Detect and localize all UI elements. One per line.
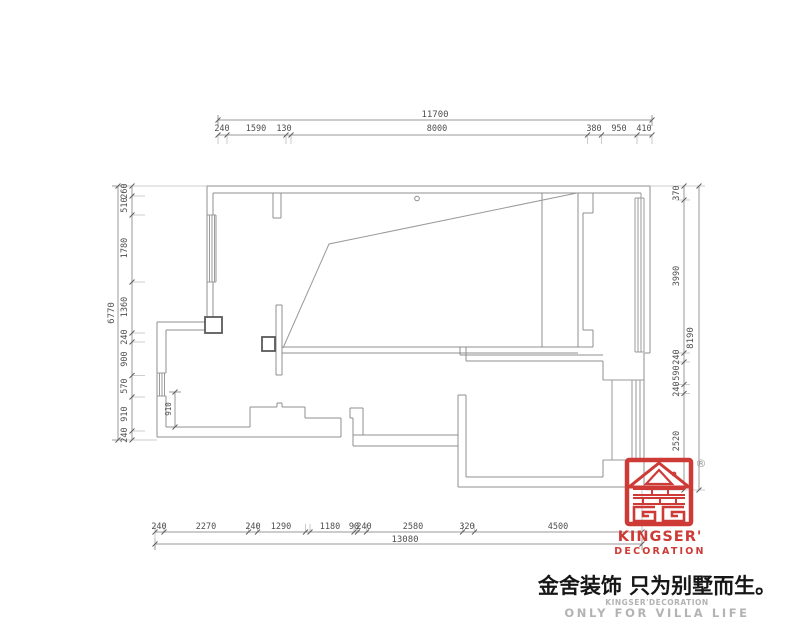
dim-label: 410 — [636, 124, 651, 134]
dim-label: 3990 — [672, 266, 682, 286]
wall-mainroom-bottom — [282, 347, 578, 353]
brand-name: KINGSER' — [588, 529, 732, 545]
dim-label: 570 — [120, 378, 130, 393]
window-lines — [635, 193, 644, 352]
dim-label-interior: 910 — [164, 402, 173, 416]
window-hatch-lower-left — [157, 373, 166, 396]
diagonal-guideline — [283, 193, 577, 348]
dim-label: 380 — [586, 124, 601, 134]
column-marker — [262, 337, 275, 351]
dim-label-bottom-overall: 13080 — [391, 535, 418, 545]
dim-label: 2520 — [672, 431, 682, 451]
window-hatch-lines — [207, 215, 216, 282]
wall-middle — [350, 408, 458, 446]
floor-plan-sheet: 11700 240 1590 130 8000 380 950 410 6770… — [0, 0, 800, 640]
dim-label: 240 — [120, 329, 130, 344]
dim-label: 8000 — [427, 124, 447, 134]
dim-label: 320 — [459, 522, 474, 532]
dim-label: 590 — [672, 365, 682, 380]
dim-extensions — [118, 186, 207, 440]
dim-label: 240 — [672, 381, 682, 396]
dim-label: 240 — [214, 124, 229, 134]
dim-label: 1360 — [120, 297, 130, 317]
wall-right-outer — [644, 186, 650, 488]
brand-subtitle: DECORATION — [588, 546, 732, 557]
registered-mark-icon: ® — [696, 457, 707, 470]
logo-maze-left — [634, 507, 655, 521]
dim-label-right-overall: 8190 — [686, 327, 696, 349]
window-hatch-lines — [157, 373, 166, 396]
wall-divider — [276, 305, 282, 375]
window-bay-right-lower — [603, 380, 644, 460]
dim-chain-bottom: 13080 240 2270 240 1290 1180 90 240 2580… — [151, 522, 644, 550]
dim-label: 510 — [120, 197, 130, 212]
dim-label: 240 — [120, 427, 130, 442]
dim-label: 950 — [611, 124, 626, 134]
interior-dimension: 910 — [164, 390, 181, 430]
dim-label: 260 — [120, 183, 130, 198]
wall-top-stub — [273, 193, 281, 218]
dim-label: 370 — [672, 185, 682, 200]
dim-label: 1290 — [271, 522, 291, 532]
window-right-upper — [635, 193, 644, 352]
window-lines — [603, 380, 644, 460]
dim-label: 240 — [672, 349, 682, 364]
dim-label: 4500 — [548, 522, 568, 532]
dim-label: 240 — [356, 522, 371, 532]
window-hatch-upper-left — [207, 215, 216, 282]
dim-label: 130 — [276, 124, 291, 134]
dim-label: 2270 — [196, 522, 216, 532]
brand-slogan-chinese: 金舍装饰 只为别墅而生。 — [512, 570, 800, 600]
dim-label: 1180 — [320, 522, 340, 532]
dim-label: 2580 — [403, 522, 423, 532]
brand-slogan-english: ONLY FOR VILLA LIFE — [512, 606, 800, 620]
logo-maze-right — [663, 507, 684, 521]
dim-extensions — [218, 135, 652, 144]
wall-lowerleft-room — [157, 322, 341, 437]
dim-chain-top: 11700 240 1590 130 8000 380 950 410 — [214, 110, 654, 144]
dim-label: 1590 — [246, 124, 266, 134]
circle-marker — [415, 196, 420, 201]
dim-label: 240 — [151, 522, 166, 532]
dim-label: 910 — [120, 406, 130, 421]
wall-bedroom — [458, 347, 644, 487]
walls — [157, 186, 650, 488]
dim-label-left-overall: 6770 — [107, 302, 117, 324]
dim-label: 240 — [245, 522, 260, 532]
dim-label: 1780 — [120, 238, 130, 258]
dim-label-top-overall: 11700 — [421, 110, 448, 120]
column-marker — [205, 317, 222, 333]
dim-label: 900 — [120, 351, 130, 366]
logo-bricks — [633, 489, 685, 504]
wall-right-strip — [578, 193, 593, 347]
